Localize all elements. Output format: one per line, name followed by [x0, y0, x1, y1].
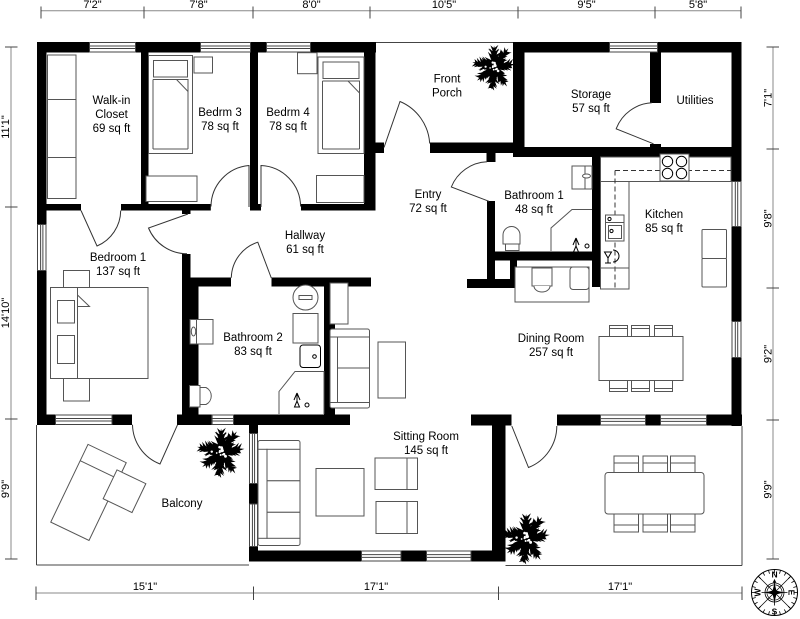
svg-text:Bathroom 1: Bathroom 1 — [504, 190, 563, 202]
svg-text:145 sq ft: 145 sq ft — [404, 445, 449, 457]
svg-text:137 sq ft: 137 sq ft — [96, 266, 141, 278]
svg-text:Front: Front — [434, 74, 462, 86]
svg-text:9'5": 9'5" — [577, 0, 595, 11]
svg-text:Walk-in: Walk-in — [93, 95, 131, 107]
svg-text:17'1": 17'1" — [364, 581, 388, 593]
svg-text:7'2": 7'2" — [83, 0, 101, 11]
svg-text:W: W — [752, 588, 762, 597]
svg-text:48 sq ft: 48 sq ft — [515, 204, 554, 216]
svg-text:17'1": 17'1" — [608, 581, 632, 593]
svg-text:78 sq ft: 78 sq ft — [269, 121, 308, 133]
svg-text:S: S — [772, 607, 778, 617]
svg-text:5'8": 5'8" — [689, 0, 707, 11]
svg-text:Bedroom 1: Bedroom 1 — [90, 252, 146, 264]
svg-text:Bedrm 3: Bedrm 3 — [198, 107, 241, 119]
svg-text:72 sq ft: 72 sq ft — [409, 203, 448, 215]
svg-text:Storage: Storage — [571, 89, 611, 101]
svg-text:9'8": 9'8" — [763, 209, 775, 227]
svg-text:Sitting Room: Sitting Room — [393, 431, 459, 443]
svg-text:Dining Room: Dining Room — [518, 333, 584, 345]
svg-text:7'8": 7'8" — [189, 0, 207, 11]
svg-text:E: E — [787, 590, 797, 596]
svg-text:61 sq ft: 61 sq ft — [286, 244, 325, 256]
svg-text:Closet: Closet — [95, 109, 128, 121]
svg-text:69 sq ft: 69 sq ft — [93, 123, 132, 135]
svg-text:14'10": 14'10" — [0, 298, 12, 329]
svg-text:57 sq ft: 57 sq ft — [572, 103, 611, 115]
svg-text:Utilities: Utilities — [676, 95, 713, 107]
svg-text:Bedrm 4: Bedrm 4 — [266, 107, 310, 119]
svg-text:7'1": 7'1" — [763, 89, 775, 107]
svg-text:10'5": 10'5" — [432, 0, 456, 11]
svg-text:Entry: Entry — [415, 189, 442, 201]
svg-text:15'1": 15'1" — [133, 581, 157, 593]
svg-text:Hallway: Hallway — [285, 230, 326, 242]
svg-text:N: N — [771, 570, 777, 580]
svg-text:Bathroom 2: Bathroom 2 — [223, 332, 282, 344]
svg-text:Kitchen: Kitchen — [645, 209, 683, 221]
svg-text:257 sq ft: 257 sq ft — [529, 347, 574, 359]
svg-text:78 sq ft: 78 sq ft — [201, 121, 240, 133]
svg-text:85 sq ft: 85 sq ft — [645, 223, 684, 235]
svg-text:9'9": 9'9" — [0, 480, 12, 498]
svg-text:83 sq ft: 83 sq ft — [234, 346, 273, 358]
svg-text:11'1": 11'1" — [0, 115, 12, 139]
svg-text:9'9": 9'9" — [763, 480, 775, 498]
svg-text:9'2": 9'2" — [763, 345, 775, 363]
svg-text:8'0": 8'0" — [302, 0, 320, 11]
svg-text:Balcony: Balcony — [162, 498, 203, 510]
svg-text:Porch: Porch — [432, 88, 462, 100]
